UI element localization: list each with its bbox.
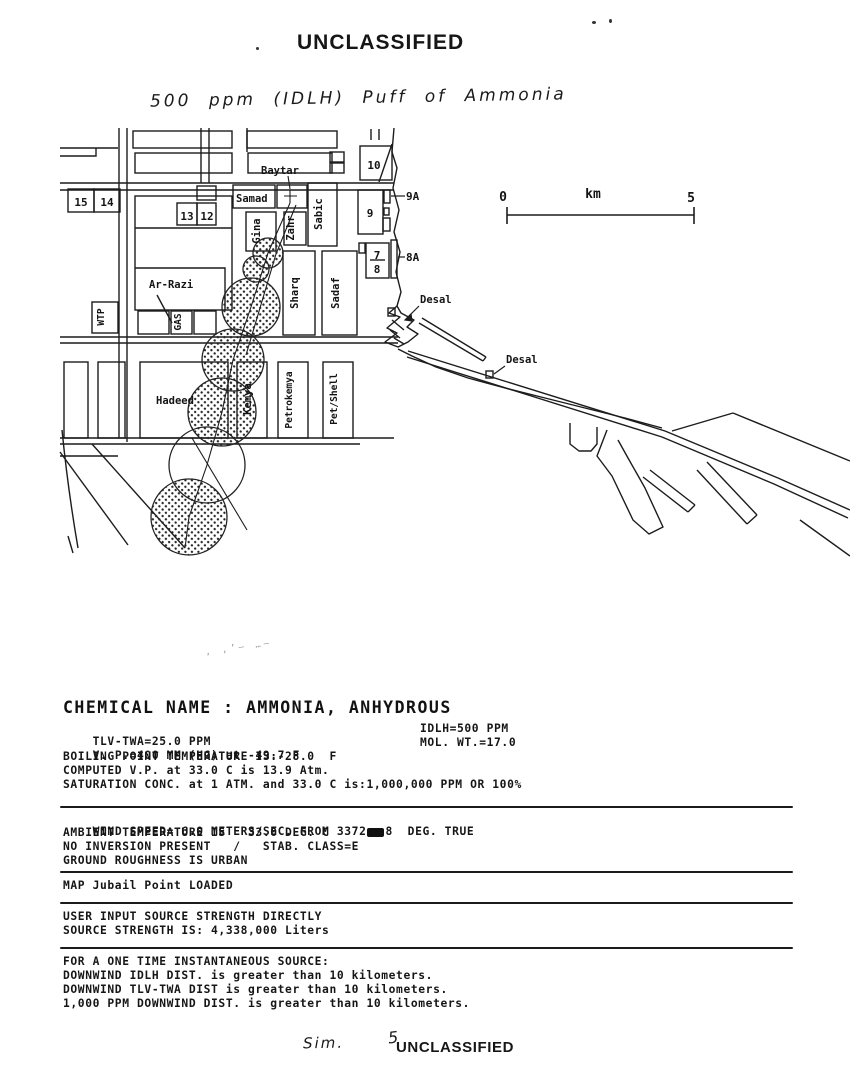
wind-overstruck-digit: 2	[359, 825, 366, 838]
wtp-label: WTP	[96, 308, 107, 325]
scale-start-label: 0	[499, 190, 507, 205]
scanned-document-page: UNCLASSIFIED 500 ppm (IDLH) Puff of Ammo…	[0, 0, 850, 1080]
samad-label: Samad	[236, 193, 268, 205]
tlv-twa-distance-line: DOWNWIND TLV-TWA DIST is greater than 10…	[63, 983, 448, 996]
map-loaded-line: MAP Jubail Point LOADED	[63, 879, 233, 892]
pencil-smudge: , ,’– …–	[205, 638, 273, 657]
baytar-label: Baytar	[261, 165, 299, 177]
ar-razi-label: Ar-Razi	[149, 279, 193, 291]
city-blocks	[64, 131, 493, 438]
block-15-label: 15	[74, 196, 87, 209]
inversion-line: NO INVERSION PRESENT / STAB. CLASS=E	[63, 840, 359, 853]
chemical-name-title: CHEMICAL NAME : AMMONIA, ANHYDROUS	[63, 698, 452, 717]
computed-vp-line: COMPUTED V.P. at 33.0 C is 13.9 Atm.	[63, 764, 329, 777]
label-leaders	[391, 196, 505, 374]
scale-end-label: 5	[687, 191, 695, 206]
block-13-label: 13	[180, 210, 193, 223]
block-12-label: 12	[200, 210, 213, 223]
kemya-label: Kemya	[242, 383, 254, 415]
overstrike-scribble	[367, 828, 384, 837]
map-labels: 15 14 13 12 10 9 9A 7 8 8A Baytar Samad …	[74, 159, 537, 429]
results-header-line: FOR A ONE TIME INSTANTANEOUS SOURCE:	[63, 955, 329, 968]
source-input-line: USER INPUT SOURCE STRENGTH DIRECTLY	[63, 910, 322, 923]
zahr-label: Zahr	[285, 215, 297, 240]
ambient-temp-line: AMBIENT TEMPERATURE IS 33.0 DEG. C	[63, 826, 329, 839]
pet-shell-label: Pet/Shell	[329, 373, 340, 425]
desal-plant-label: Desal	[420, 294, 452, 306]
idlh-value: IDLH=500 PPM	[420, 722, 509, 735]
block-9-label: 9	[367, 207, 374, 220]
block-8a-label: 8A	[406, 251, 420, 264]
source-strength-line: SOURCE STRENGTH IS: 4,338,000 Liters	[63, 924, 329, 937]
gas-label: GAS	[173, 313, 184, 330]
gina-label: Gina	[251, 218, 263, 243]
block-8-label: 8	[374, 263, 381, 276]
source-cross-mark	[284, 190, 297, 203]
saturation-conc-line: SATURATION CONC. at 1 ATM. and 33.0 C is…	[63, 778, 522, 791]
wind-speed-suffix: 8 DEG. TRUE	[385, 825, 474, 838]
block-14-label: 14	[100, 196, 114, 209]
ground-roughness-line: GROUND ROUGHNESS IS URBAN	[63, 854, 248, 867]
coastline-and-harbor	[379, 128, 850, 556]
jubail-map: 15 14 13 12 10 9 9A 7 8 8A Baytar Samad …	[0, 0, 850, 620]
boiling-point-line: BOILING POINT TEMPERATURE IS:-28.0 F	[63, 750, 337, 763]
section-divider	[60, 806, 793, 808]
sharq-label: Sharq	[289, 277, 301, 309]
block-10-label: 10	[367, 159, 380, 172]
petrokemya-label: Petrokemya	[284, 371, 295, 428]
handwritten-sim-note: Sim.	[303, 1034, 344, 1053]
mol-wt-value: MOL. WT.=17.0	[420, 736, 516, 749]
hadeed-label: Hadeed	[156, 395, 194, 407]
block-7-label: 7	[374, 249, 381, 262]
bottom-classification-banner: UNCLASSIFIED	[396, 1039, 514, 1056]
scale-unit-label: km	[585, 187, 601, 202]
section-divider	[60, 947, 793, 949]
scale-bar: 0 km 5	[499, 187, 695, 224]
section-divider	[60, 902, 793, 904]
block-9a-label: 9A	[406, 190, 420, 203]
ppm-distance-line: 1,000 PPM DOWNWIND DIST. is greater than…	[63, 997, 470, 1010]
desal-intake-label: Desal	[506, 354, 538, 366]
section-divider	[60, 871, 793, 873]
idlh-distance-line: DOWNWIND IDLH DIST. is greater than 10 k…	[63, 969, 433, 982]
sabic-label: Sabic	[313, 198, 325, 230]
sadaf-label: Sadaf	[330, 277, 342, 309]
